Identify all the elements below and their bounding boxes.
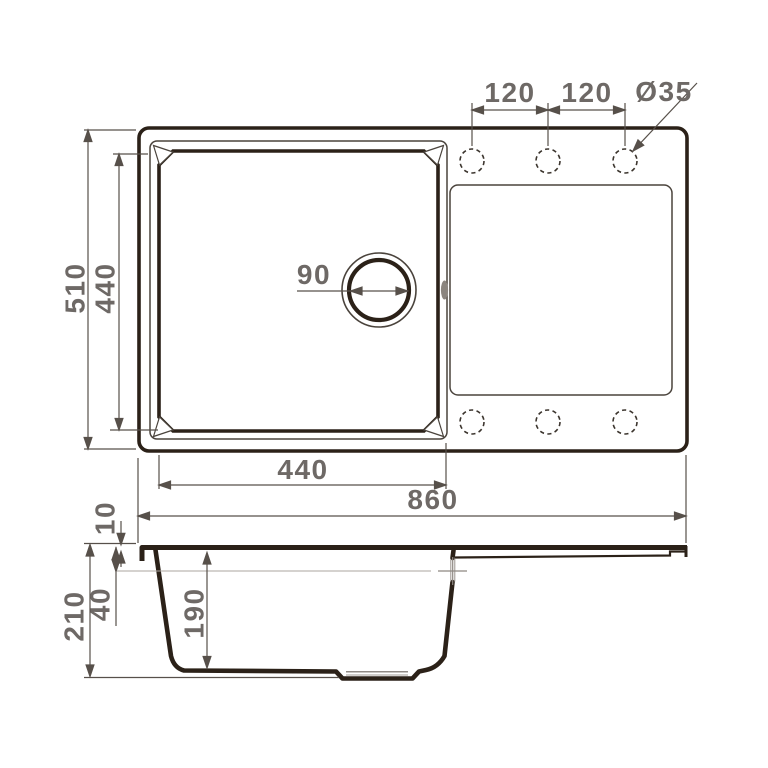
label-tap-hole-diameter: Ø35	[635, 76, 692, 107]
bowl-right-wall-stub	[453, 551, 454, 559]
drainboard-underside	[455, 552, 686, 558]
overflow-slot	[441, 281, 448, 300]
label-bowl-width: 440	[90, 262, 121, 313]
label-deck-thickness: 10	[90, 501, 121, 535]
label-overall-width: 510	[60, 262, 91, 313]
top-view	[139, 128, 687, 451]
label-bowl-depth: 190	[179, 587, 210, 638]
label-tap-spacing-left: 120	[484, 77, 535, 108]
label-overall-length: 860	[407, 484, 458, 515]
label-drain-diameter: 90	[297, 259, 331, 290]
label-tap-spacing-right: 120	[561, 77, 612, 108]
deck-top-line	[142, 548, 687, 562]
overflow-crosshair	[438, 557, 467, 585]
label-overflow-offset: 40	[85, 587, 116, 621]
sink-technical-drawing: 510 440 90 120 120 Ø35 440 860 10 210 40…	[0, 0, 768, 768]
side-view-dimensions	[84, 521, 339, 678]
label-bowl-length: 440	[277, 454, 328, 485]
